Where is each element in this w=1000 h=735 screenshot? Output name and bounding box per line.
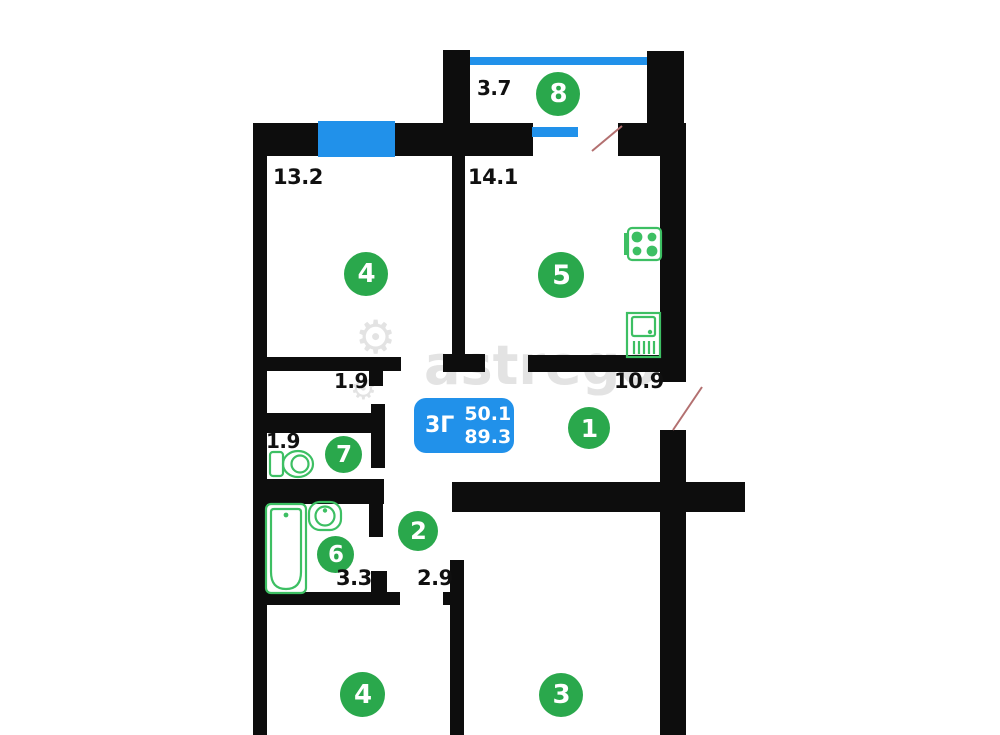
wall-room45-divider xyxy=(452,156,465,355)
window xyxy=(470,57,647,65)
door-swing xyxy=(673,387,702,430)
wall-toilet-top-stub xyxy=(371,404,385,433)
room-number-toilet: 7 xyxy=(325,436,362,473)
room-number-bottom-right: 3 xyxy=(539,673,583,717)
window xyxy=(318,121,395,157)
wall-top-right xyxy=(618,123,686,156)
wall-balcony-left xyxy=(443,50,470,123)
wall-balcony-right xyxy=(647,51,684,123)
floor-plan: ⚙ ⚙ astrego xyxy=(0,0,1000,735)
wall-top-mid xyxy=(395,123,533,156)
wall-corridor-stub xyxy=(369,371,383,386)
kitchen-sink-icon xyxy=(624,310,664,360)
room-number-kitchen: 5 xyxy=(538,252,584,298)
wall-left xyxy=(253,123,267,735)
room-number-hallway: 1 xyxy=(568,407,610,449)
area-label-kitchen: 14.1 xyxy=(468,165,518,189)
wall-right-lower xyxy=(660,430,686,735)
apartment-badge: 3Г 50.1 89.3 xyxy=(414,398,514,453)
room-number-bedroom-top: 4 xyxy=(344,252,388,296)
wall-bath-right xyxy=(369,504,383,537)
wall-central xyxy=(452,482,745,512)
total-area-value: 89.3 xyxy=(464,426,511,448)
wall-room3-left-stub xyxy=(443,592,450,605)
area-label-hallway: 10.9 xyxy=(614,369,664,393)
gear-icon: ⚙ xyxy=(355,310,396,364)
room-number-hall: 2 xyxy=(398,511,438,551)
area-label-balcony: 3.7 xyxy=(477,76,511,100)
wall-bath-door-stub xyxy=(371,571,387,593)
stove-icon xyxy=(622,224,664,264)
area-label-passage: 2.9 xyxy=(417,566,453,590)
window xyxy=(532,127,578,137)
apartment-type: 3Г xyxy=(425,413,454,438)
area-label-bedroom-top: 13.2 xyxy=(273,165,323,189)
area-label-bathroom: 3.3 xyxy=(336,566,372,590)
bathtub-icon xyxy=(263,501,309,596)
room-number-balcony: 8 xyxy=(536,72,580,116)
room-number-bottom-left: 4 xyxy=(340,672,385,717)
living-area-value: 50.1 xyxy=(464,403,511,425)
washbasin-icon xyxy=(306,499,344,534)
wall-room45-foot xyxy=(443,354,485,372)
area-label-toilet: 1.9 xyxy=(266,429,300,453)
wall-toilet-right xyxy=(371,433,385,468)
area-label-corridor: 1.9 xyxy=(334,369,368,393)
